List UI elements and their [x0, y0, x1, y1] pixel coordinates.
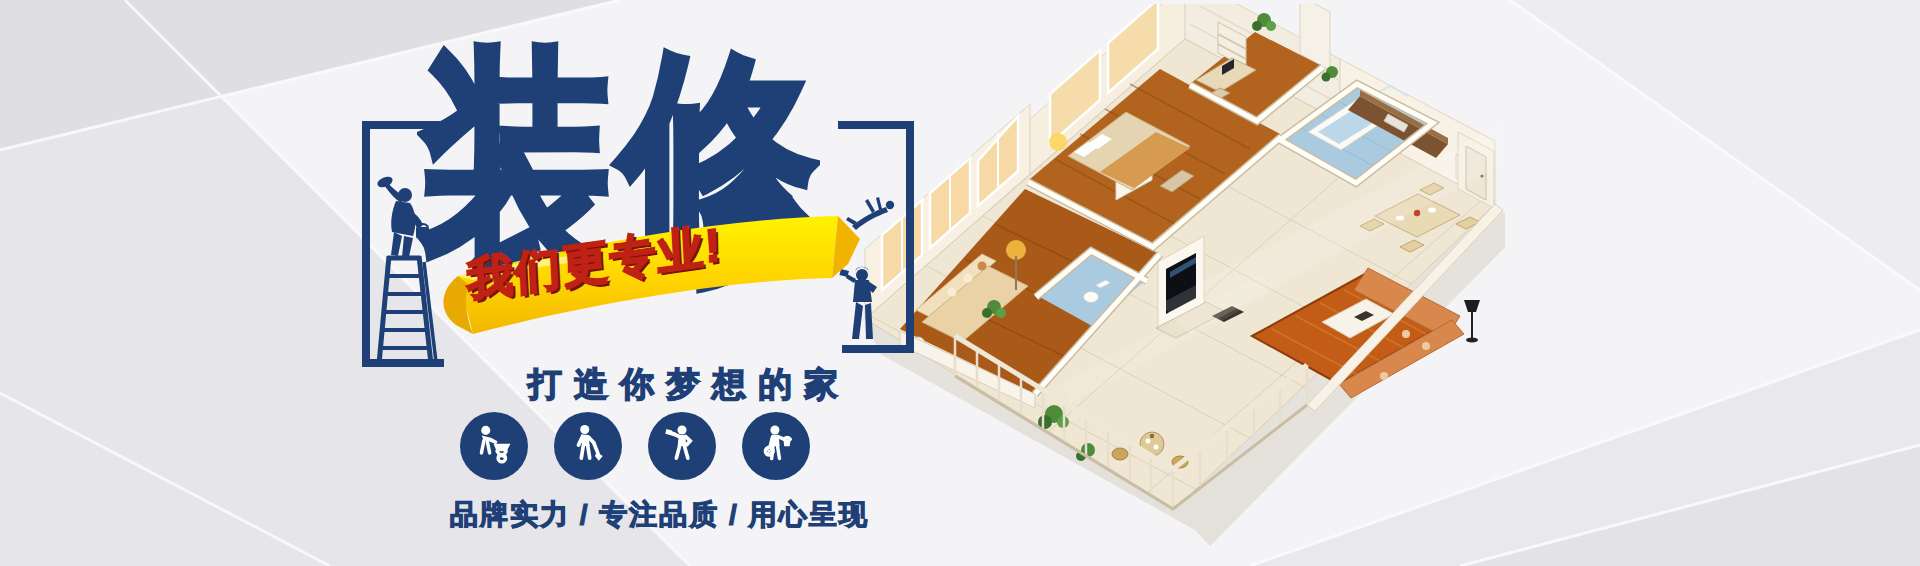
apartment-3d-floorplan [860, 4, 1505, 556]
renovation-banner: 装修 我们更专业! [0, 0, 1920, 566]
shovel-worker-icon [554, 412, 622, 480]
slogan-text: 品牌实力 / 专注品质 / 用心呈现 [450, 496, 869, 534]
hammer-worker-icon [648, 412, 716, 480]
ribbon-banner: 我们更专业! [428, 198, 873, 340]
wheelbarrow-worker-icon [460, 412, 528, 480]
paint-bucket-worker-icon [742, 412, 810, 480]
subtitle-text: 打造你梦想的家 [528, 362, 850, 408]
worker-icon-row [460, 412, 810, 480]
